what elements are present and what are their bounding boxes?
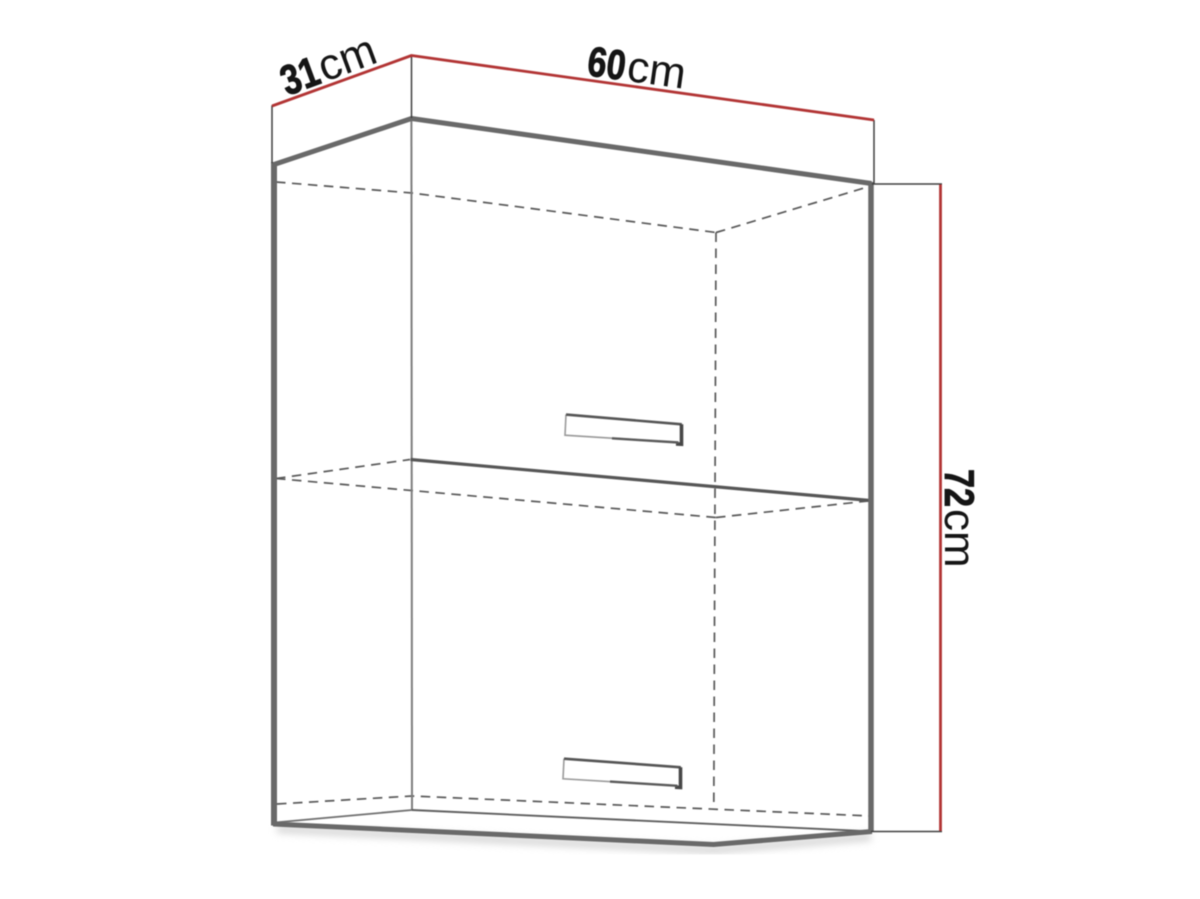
svg-text:72cm: 72cm bbox=[935, 469, 984, 568]
